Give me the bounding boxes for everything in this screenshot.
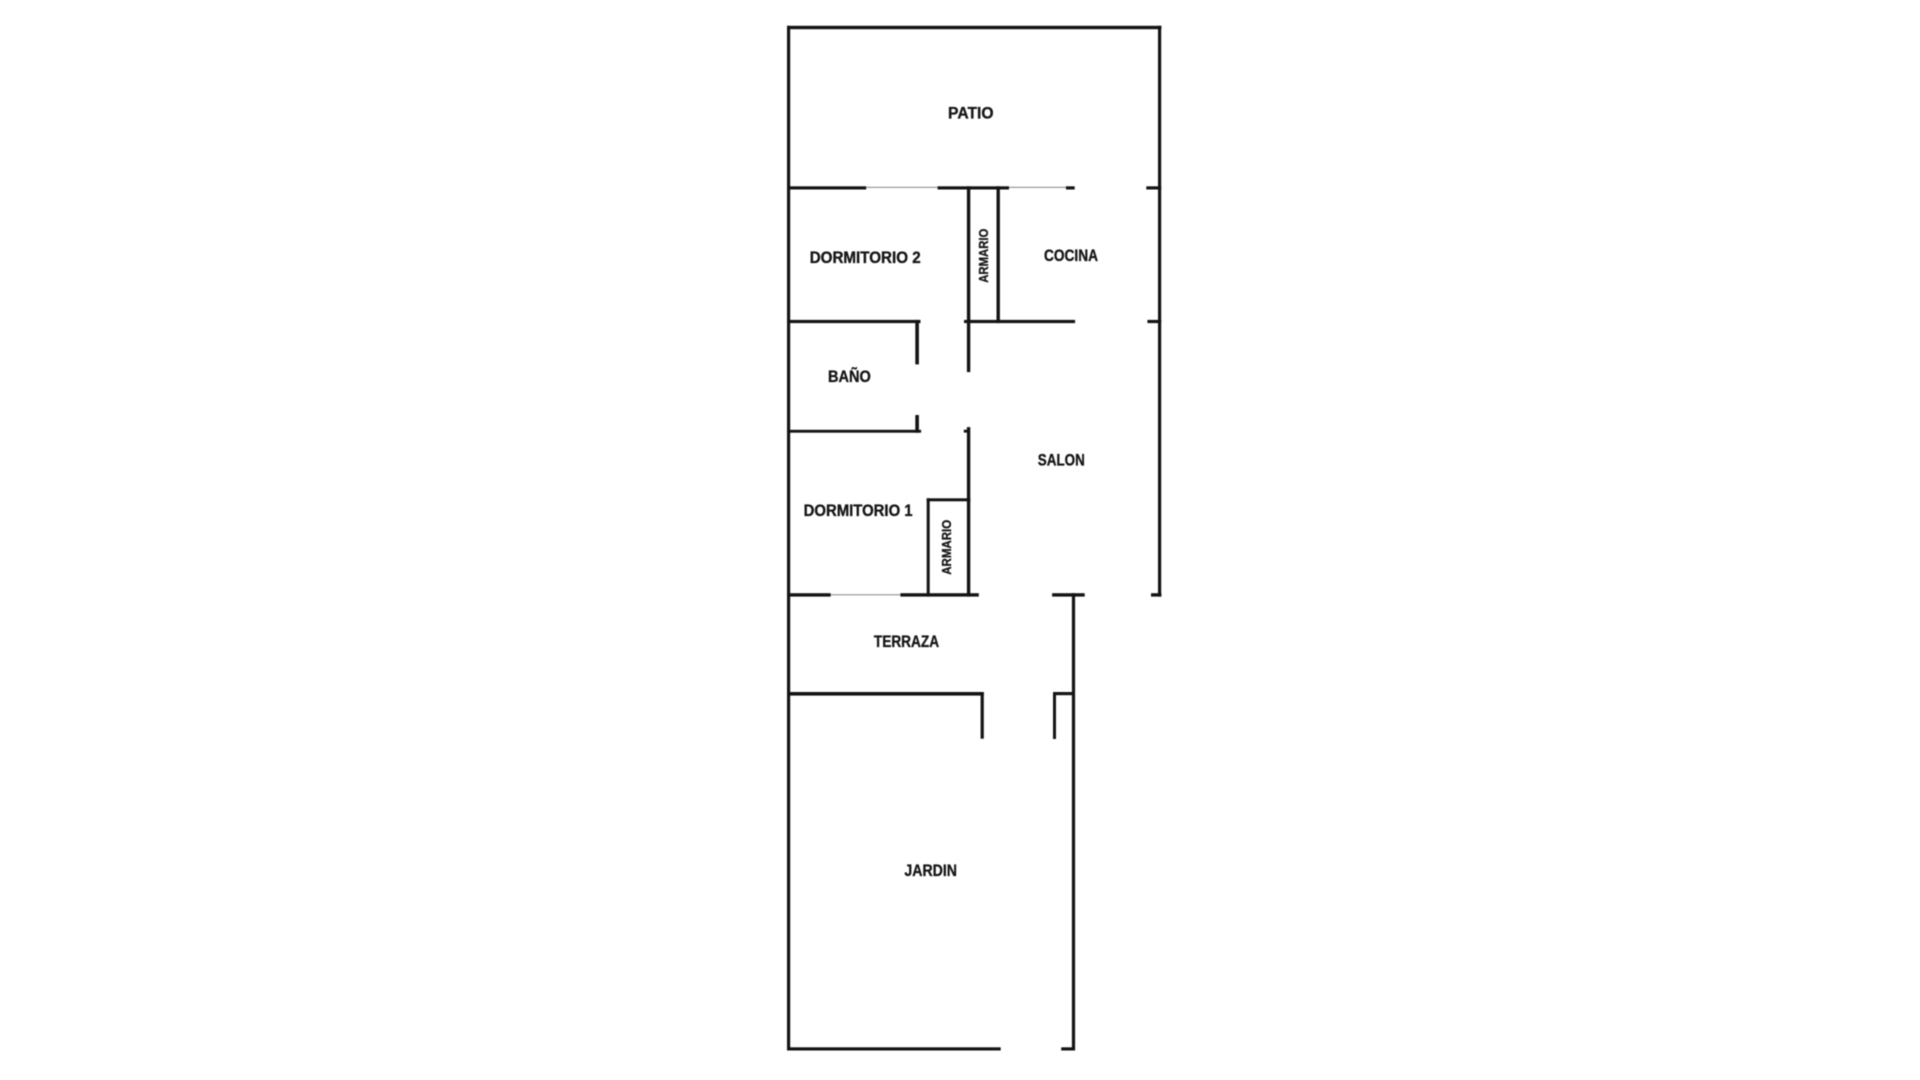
svg-text:SALON: SALON: [1038, 452, 1085, 470]
svg-text:TERRAZA: TERRAZA: [874, 633, 939, 651]
svg-text:BAÑO: BAÑO: [828, 366, 871, 386]
svg-text:DORMITORIO 2: DORMITORIO 2: [810, 249, 921, 267]
svg-text:JARDIN: JARDIN: [904, 862, 957, 880]
svg-text:COCINA: COCINA: [1044, 247, 1098, 265]
svg-text:PATIO: PATIO: [948, 104, 994, 122]
svg-text:ARMARIO: ARMARIO: [977, 228, 991, 282]
svg-text:ARMARIO: ARMARIO: [940, 520, 954, 575]
svg-text:DORMITORIO 1: DORMITORIO 1: [804, 502, 913, 520]
